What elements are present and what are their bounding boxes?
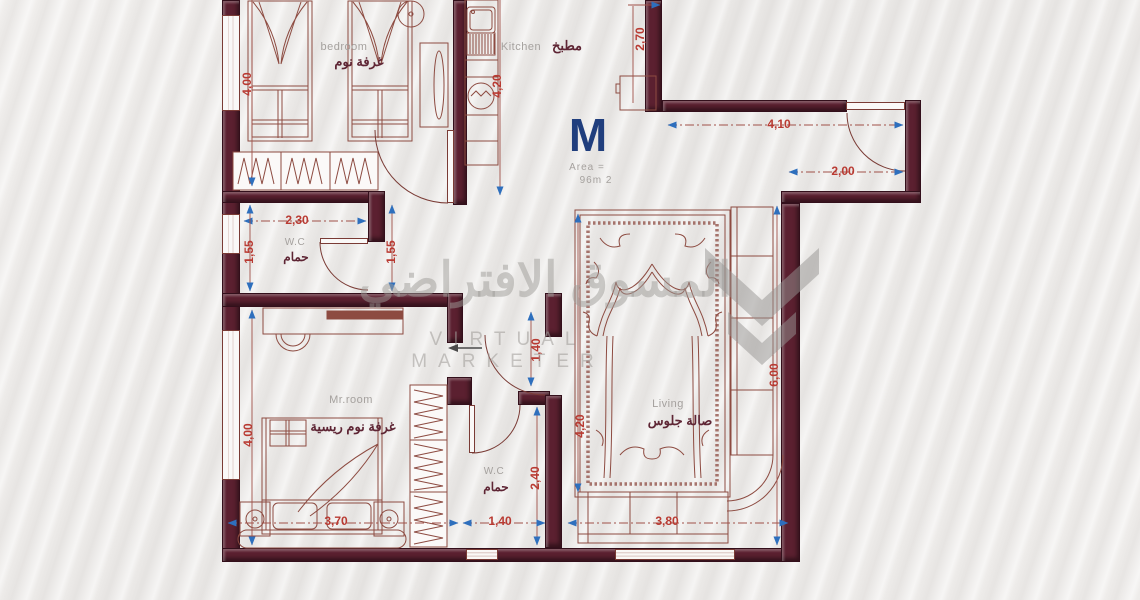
chevron-logo-icon <box>705 248 819 365</box>
watermark-logo-layer <box>0 0 1140 600</box>
floor-plan-canvas: bedroom غرفة نوم Kitchen مطبخ W.C حمام M… <box>0 0 1140 600</box>
